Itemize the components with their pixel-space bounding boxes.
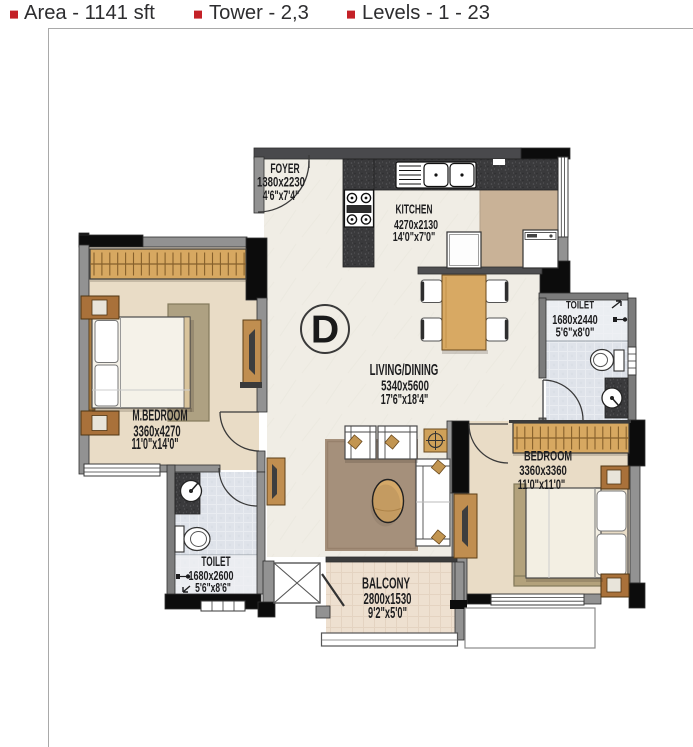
svg-text:Area - 1141 sft: Area - 1141 sft: [24, 2, 155, 24]
svg-text:LIVING/DINING: LIVING/DINING: [370, 360, 439, 378]
svg-text:3360x3360: 3360x3360: [519, 462, 567, 478]
svg-text:TOILET: TOILET: [201, 555, 230, 570]
svg-text:9'2"x5'0": 9'2"x5'0": [368, 603, 407, 621]
svg-text:5'6"x8'0": 5'6"x8'0": [556, 326, 595, 340]
svg-text:D: D: [311, 309, 339, 352]
svg-text:14'0"x7'0": 14'0"x7'0": [393, 230, 436, 244]
svg-text:4'6"x7'4": 4'6"x7'4": [263, 188, 299, 204]
svg-text:5'6"x8'6": 5'6"x8'6": [195, 581, 231, 595]
svg-text:17'6"x18'4": 17'6"x18'4": [381, 391, 429, 408]
svg-text:Tower - 2,3: Tower - 2,3: [209, 2, 309, 24]
svg-text:11'0"x14'0": 11'0"x14'0": [131, 434, 178, 453]
svg-text:Levels - 1 - 23: Levels - 1 - 23: [362, 2, 490, 24]
svg-text:KITCHEN: KITCHEN: [396, 203, 433, 217]
svg-text:11'0"x11'0": 11'0"x11'0": [518, 477, 565, 492]
svg-text:TOILET: TOILET: [566, 299, 594, 312]
